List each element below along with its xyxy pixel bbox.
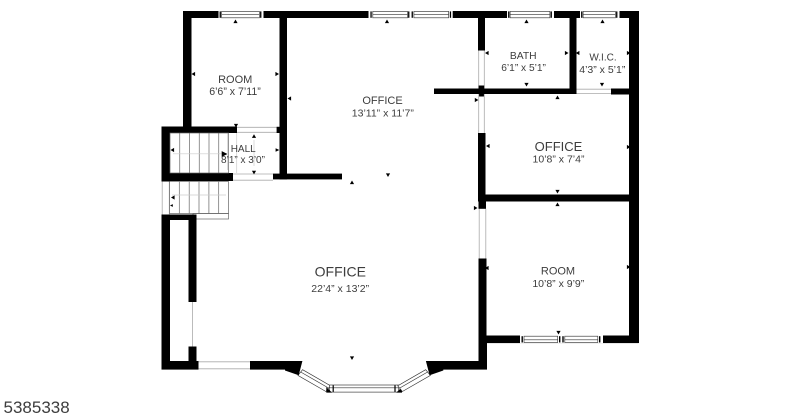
svg-text:13’11” x 11’7”: 13’11” x 11’7” [352, 107, 415, 119]
svg-text:OFFICE: OFFICE [315, 263, 366, 279]
svg-text:22’4” x 13’2”: 22’4” x 13’2” [311, 283, 369, 295]
svg-text:HALL: HALL [231, 144, 256, 155]
svg-text:OFFICE: OFFICE [362, 95, 402, 107]
svg-text:W.I.C.: W.I.C. [589, 52, 616, 63]
svg-text:6’1” x 5’1”: 6’1” x 5’1” [501, 63, 546, 74]
svg-text:ROOM: ROOM [218, 74, 252, 86]
svg-text:8’1” x 3’0”: 8’1” x 3’0” [221, 155, 265, 166]
svg-text:5385338: 5385338 [4, 398, 70, 417]
svg-text:10’8” x 7’4”: 10’8” x 7’4” [533, 154, 585, 166]
svg-text:BATH: BATH [510, 51, 537, 62]
svg-text:OFFICE: OFFICE [535, 139, 583, 154]
svg-text:6’6” x 7’11”: 6’6” x 7’11” [209, 86, 261, 98]
svg-text:ROOM: ROOM [541, 266, 575, 278]
svg-text:4’3” x 5’1”: 4’3” x 5’1” [579, 64, 626, 76]
svg-text:10’8” x 9’9”: 10’8” x 9’9” [532, 278, 584, 290]
